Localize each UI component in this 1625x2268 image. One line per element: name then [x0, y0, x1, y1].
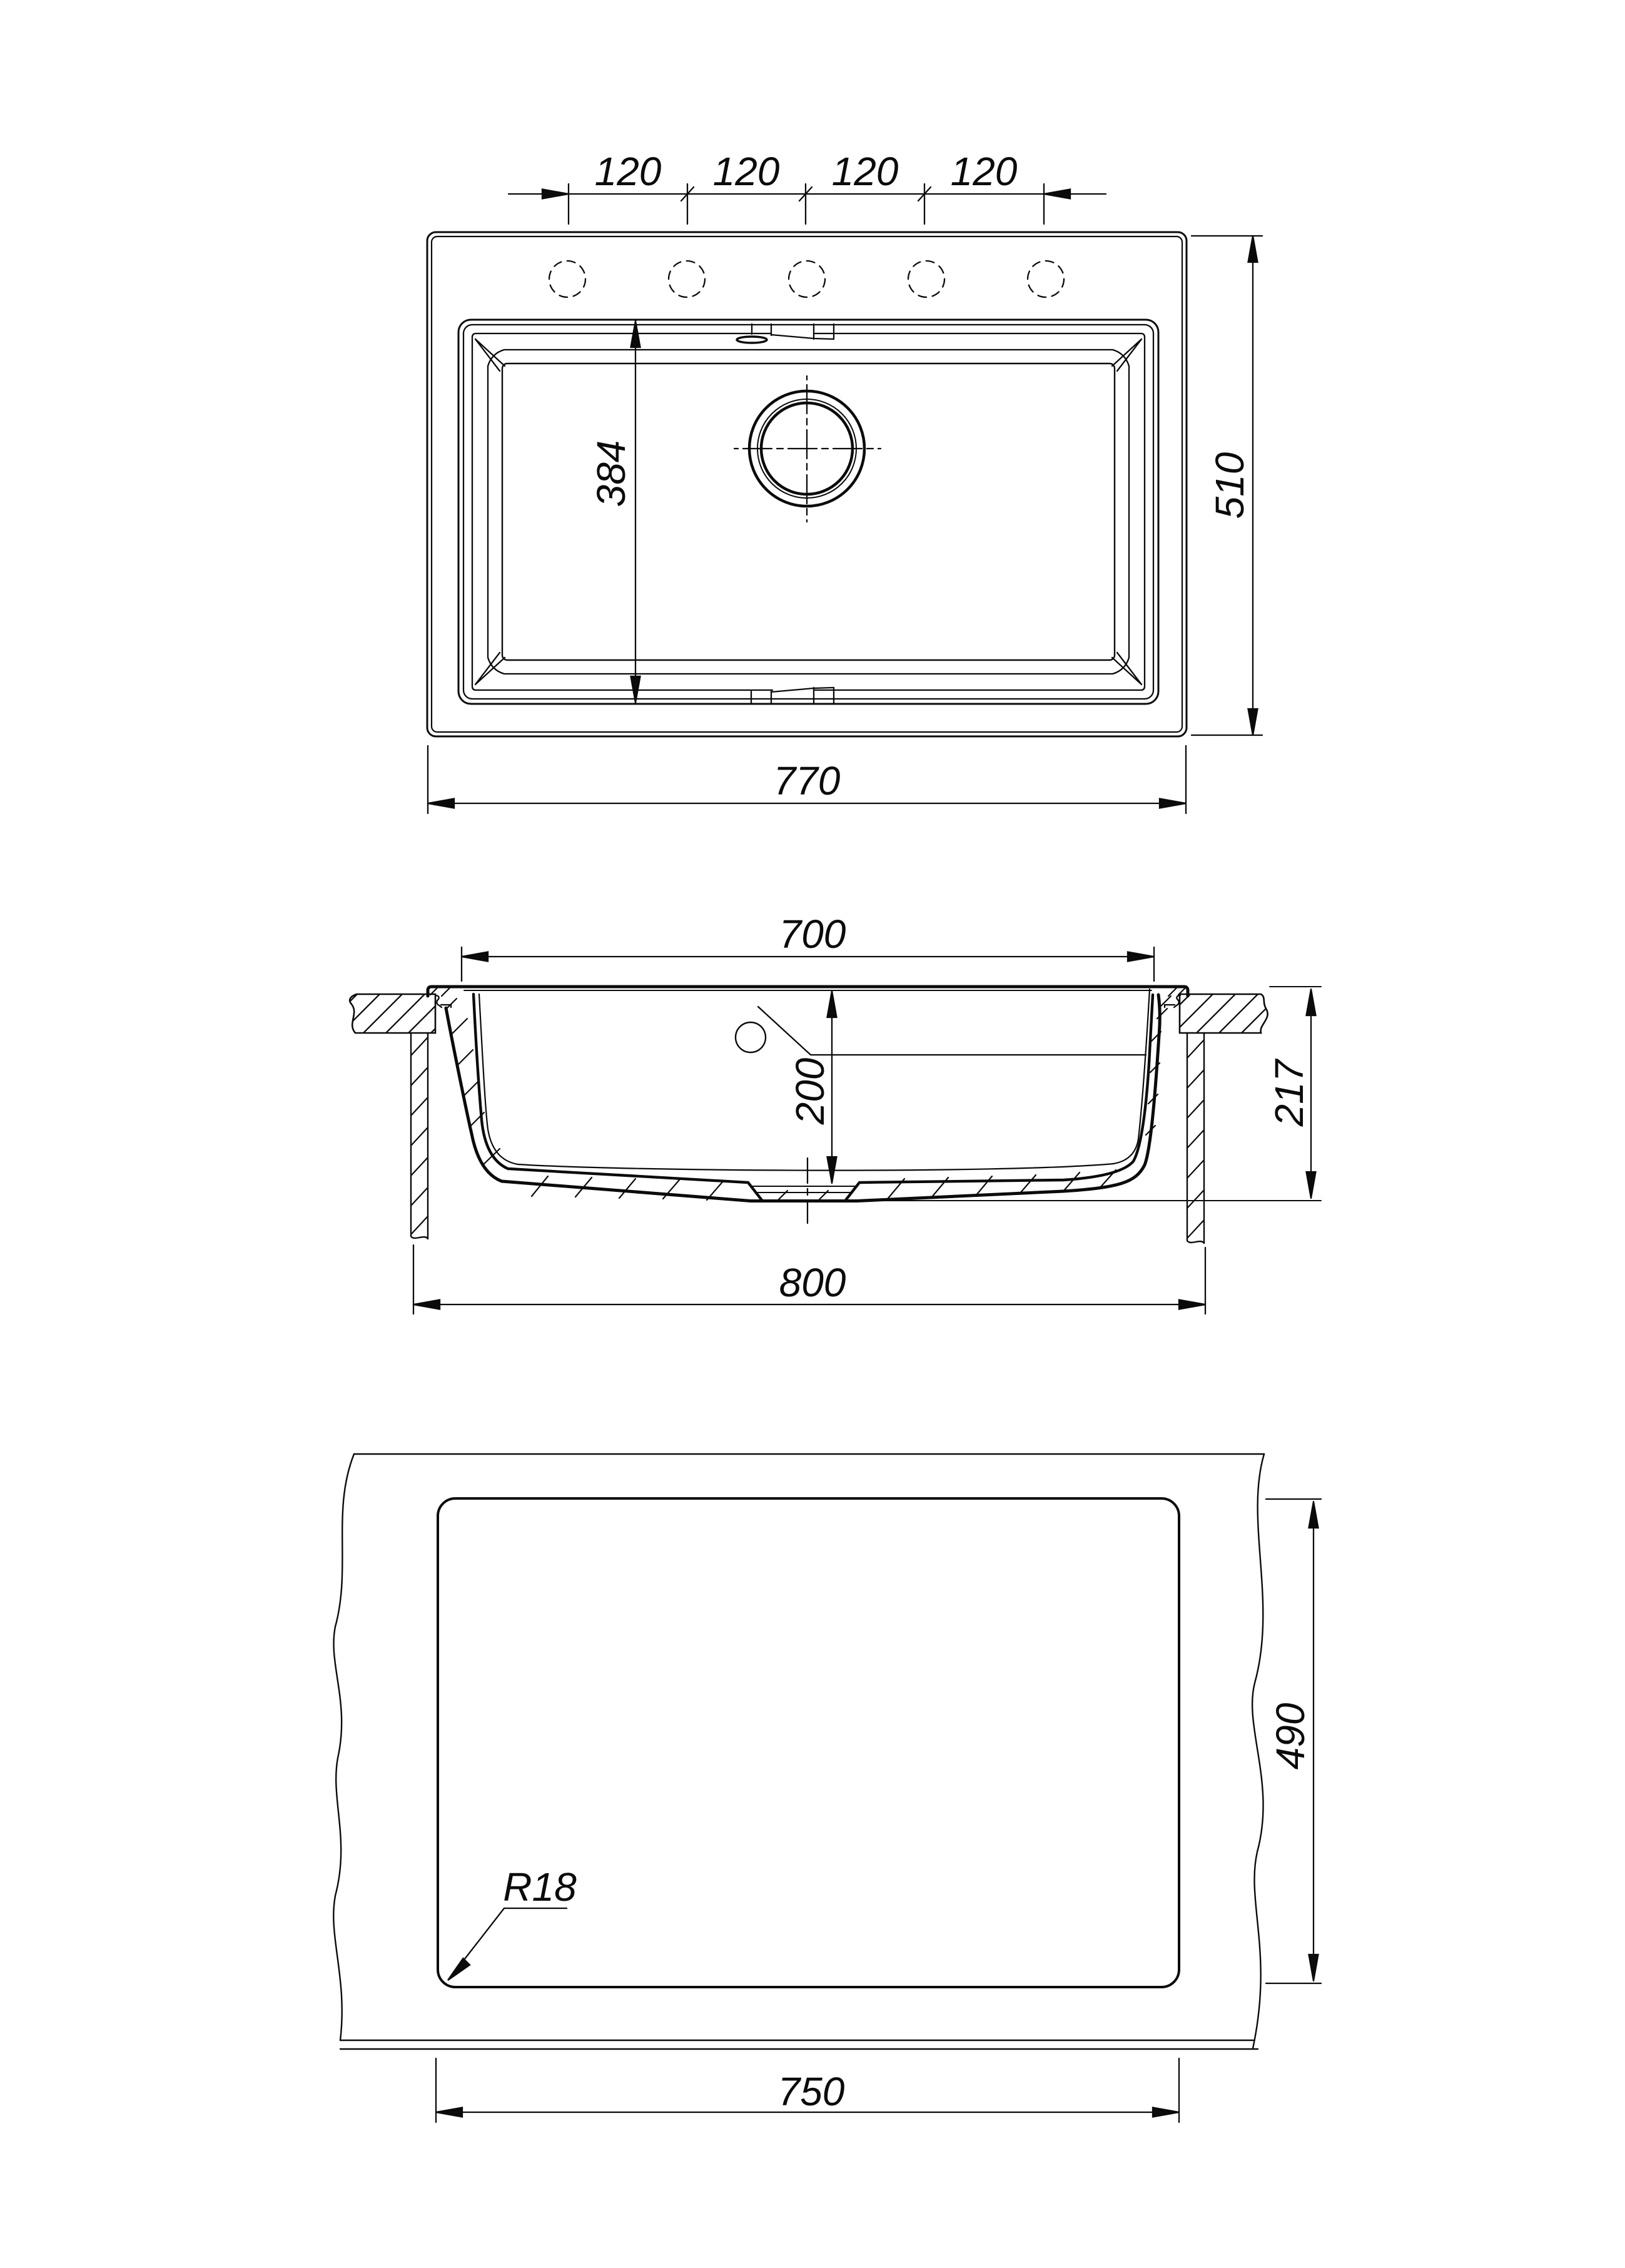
svg-text:120: 120 [951, 149, 1018, 194]
svg-text:490: 490 [1268, 1702, 1313, 1769]
svg-text:120: 120 [832, 149, 899, 194]
svg-text:120: 120 [713, 149, 780, 194]
svg-text:120: 120 [595, 149, 662, 194]
svg-text:R18: R18 [503, 1864, 577, 1909]
svg-text:770: 770 [774, 758, 841, 803]
svg-text:800: 800 [779, 1260, 846, 1305]
svg-text:200: 200 [787, 1057, 833, 1125]
svg-text:750: 750 [778, 2069, 845, 2114]
svg-text:700: 700 [779, 912, 846, 957]
svg-text:510: 510 [1207, 452, 1252, 519]
svg-text:384: 384 [589, 440, 634, 507]
svg-text:217: 217 [1267, 1058, 1312, 1127]
